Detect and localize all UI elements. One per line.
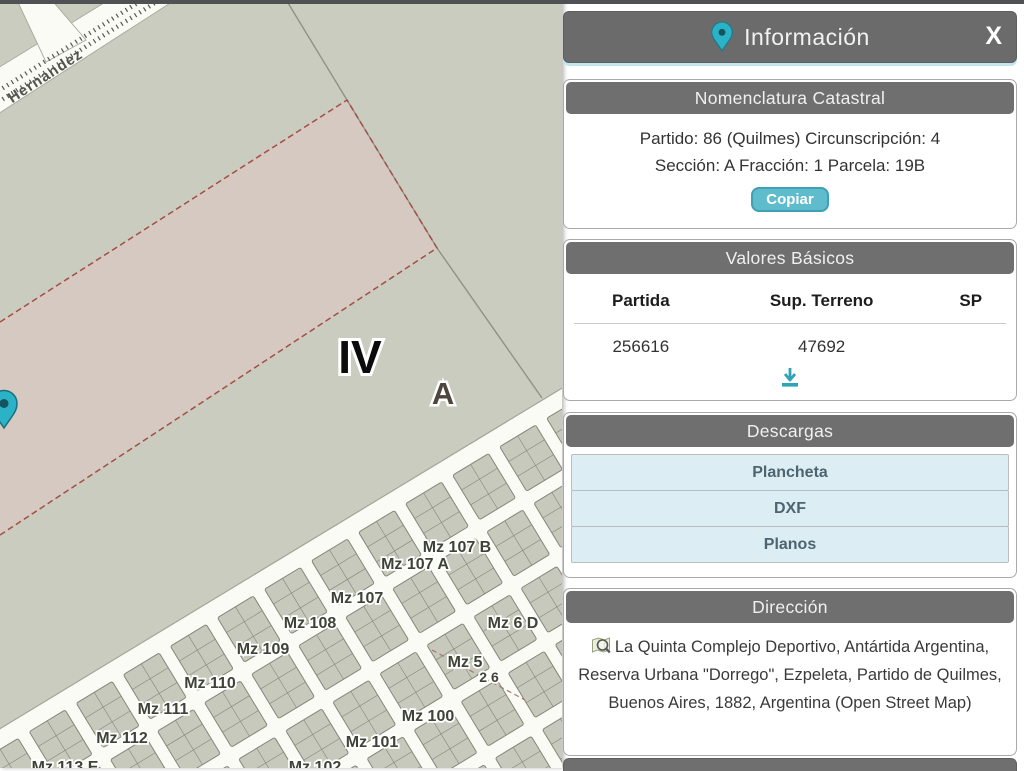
map-label: Mz 5 bbox=[448, 654, 483, 671]
map-label: Mz 109 bbox=[237, 641, 290, 658]
panel-title: Información bbox=[744, 24, 870, 51]
cell-sup-terreno: 47692 bbox=[718, 337, 926, 357]
section-direccion: Dirección La Quinta Complejo Deportivo, … bbox=[563, 588, 1017, 756]
table-divider bbox=[574, 323, 1006, 324]
download-icon[interactable] bbox=[778, 365, 802, 389]
col-sp: SP bbox=[926, 291, 1016, 311]
map-label: A bbox=[432, 376, 454, 411]
map-label: Mz 101 bbox=[346, 734, 399, 751]
address-text: La Quinta Complejo Deportivo, Antártida … bbox=[578, 638, 1002, 712]
cell-partida: 256616 bbox=[564, 337, 718, 357]
location-pin-icon bbox=[710, 21, 734, 54]
section-nomenclatura: Nomenclatura Catastral Partido: 86 (Quil… bbox=[563, 79, 1017, 229]
map-label: Mz 108 bbox=[284, 615, 337, 632]
map-label: Mz 107 B bbox=[423, 539, 491, 556]
section-descargas-title: Descargas bbox=[566, 415, 1014, 447]
top-strip bbox=[0, 0, 1024, 4]
map-label: Mz 6 D bbox=[488, 615, 539, 632]
map-canvas[interactable]: HernandezIVAMz 107 BMz 107 AMz 107Mz 108… bbox=[0, 0, 562, 768]
info-panel: Información X Nomenclatura Catastral Par… bbox=[563, 0, 1017, 771]
copy-button[interactable]: Copiar bbox=[751, 187, 829, 212]
map-label: Mz 102 bbox=[289, 759, 342, 768]
map-label: IV bbox=[338, 331, 382, 383]
table-row: 256616 47692 bbox=[564, 337, 1016, 357]
close-button[interactable]: X bbox=[985, 21, 1002, 51]
panel-header: Información X bbox=[563, 11, 1017, 63]
section-descargas: Descargas Plancheta DXF Planos bbox=[563, 412, 1017, 578]
map-label: 2 6 bbox=[479, 669, 499, 685]
download-link-dxf[interactable]: DXF bbox=[571, 490, 1009, 527]
valores-table-header: Partida Sup. Terreno SP bbox=[564, 291, 1016, 323]
map-label: Mz 113 E bbox=[32, 759, 99, 768]
map-label: Mz 112 bbox=[96, 730, 148, 747]
map-label: Mz 110 bbox=[184, 675, 236, 692]
section-nomenclatura-title: Nomenclatura Catastral bbox=[566, 82, 1014, 114]
col-sup-terreno: Sup. Terreno bbox=[718, 291, 926, 311]
download-link-planos[interactable]: Planos bbox=[571, 526, 1009, 563]
download-link-plancheta[interactable]: Plancheta bbox=[571, 454, 1009, 491]
nomenclatura-line1: Partido: 86 (Quilmes) Circunscripción: 4 bbox=[564, 125, 1016, 152]
cell-sp bbox=[926, 337, 1016, 357]
col-partida: Partida bbox=[564, 291, 718, 311]
map-label: Mz 107 A bbox=[381, 556, 449, 573]
address-text-wrap: La Quinta Complejo Deportivo, Antártida … bbox=[576, 633, 1004, 717]
nomenclatura-line2: Sección: A Fracción: 1 Parcela: 19B bbox=[564, 152, 1016, 179]
map-search-icon bbox=[591, 636, 611, 656]
section-valores: Valores Básicos Partida Sup. Terreno SP … bbox=[563, 239, 1017, 401]
map-label: Mz 107 bbox=[331, 590, 384, 607]
section-direccion-title: Dirección bbox=[566, 591, 1014, 623]
section-valores-title: Valores Básicos bbox=[566, 242, 1014, 274]
next-section-cut bbox=[563, 758, 1017, 771]
map-label: Mz 111 bbox=[138, 701, 189, 718]
map-label: Mz 100 bbox=[402, 708, 455, 725]
